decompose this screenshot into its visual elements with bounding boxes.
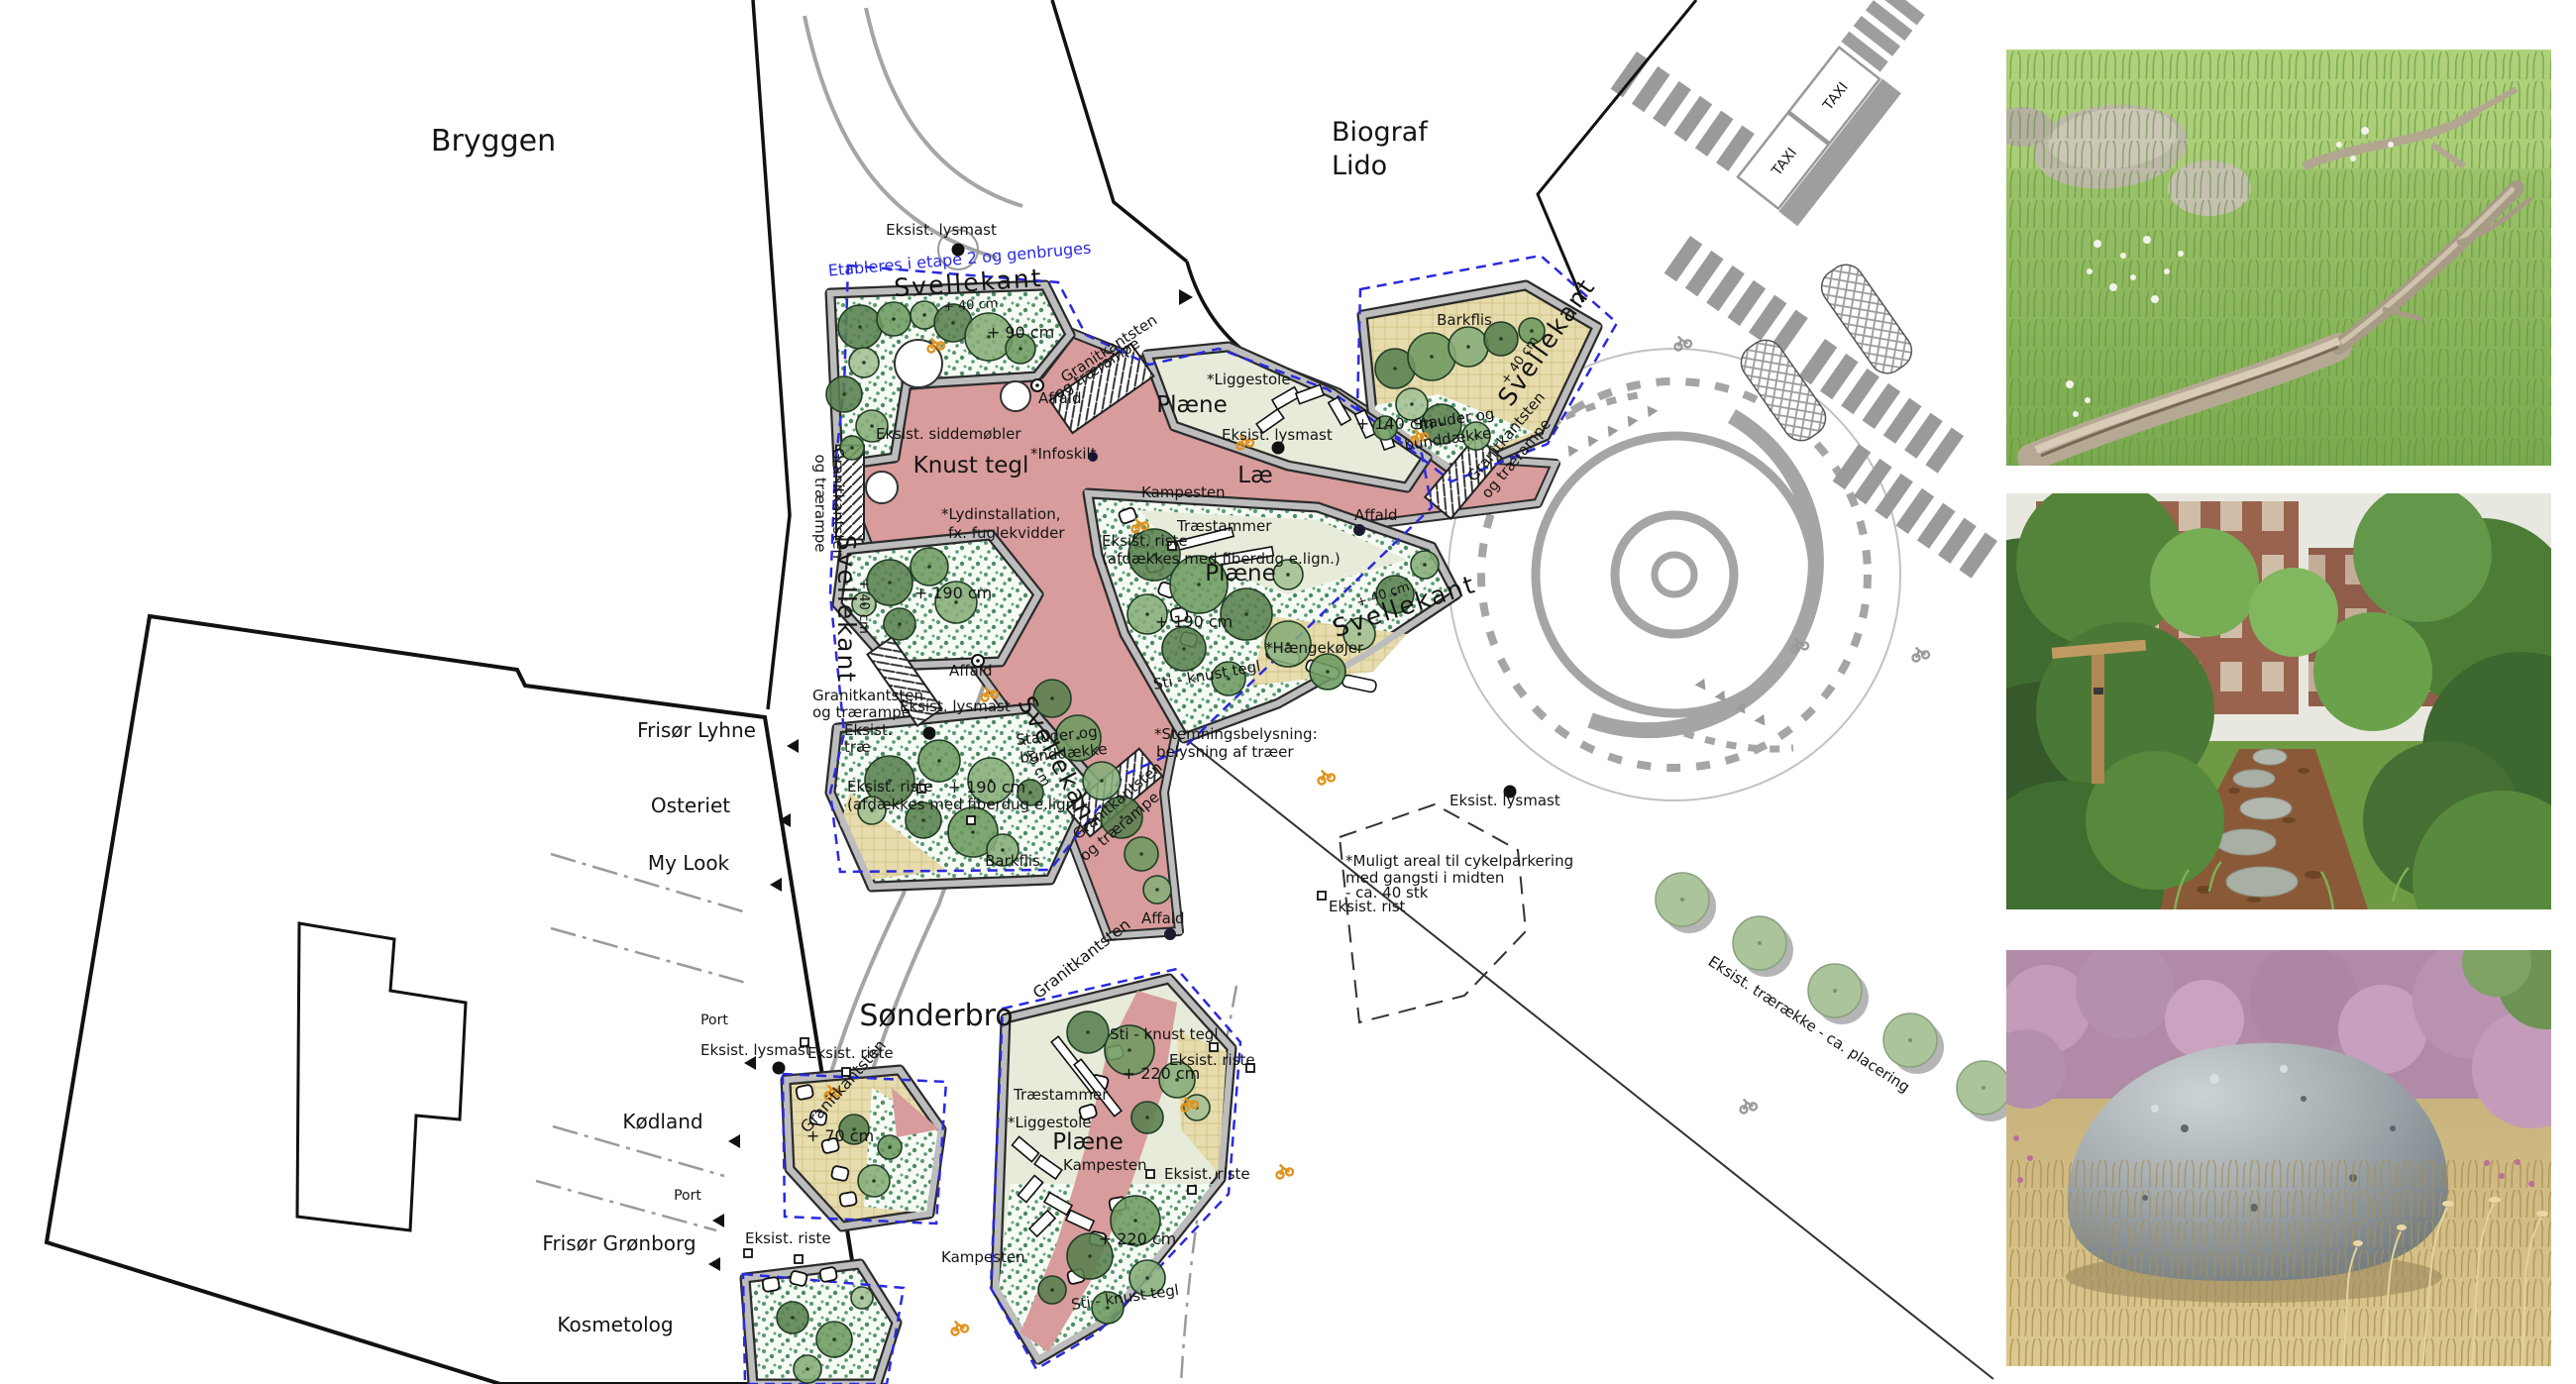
taxi-zone: TAXI TAXI bbox=[1735, 0, 1948, 226]
label-affald: Affald bbox=[1038, 389, 1081, 407]
building-label-lido: Lido bbox=[1332, 151, 1387, 181]
site-plan-drawing: TAXI TAXI Bryggen bbox=[0, 0, 2576, 1384]
street-label-bryggen: Bryggen bbox=[431, 124, 556, 159]
label-granitkantsten-traerampe: Granitkantsten bbox=[829, 448, 847, 559]
photo-woodland-path bbox=[1932, 479, 2576, 979]
label-eksist-lysmast: Eksist. lysmast bbox=[900, 697, 1011, 715]
label-plus190: + 190 cm bbox=[914, 584, 993, 602]
label-barkflis: Barkflis bbox=[1437, 311, 1492, 329]
label-eksist-lysmast: Eksist. lysmast bbox=[1449, 792, 1560, 809]
label-infoskilt: *Infoskilt bbox=[1030, 445, 1097, 463]
label-plus90: + 90 cm bbox=[987, 323, 1054, 342]
label-sti-knust-tegl: Sti - knust tegl bbox=[1110, 1025, 1218, 1043]
label-eksist-riste-afdaekkes: Eksist. riste bbox=[847, 778, 933, 796]
label-eksist-trae: Eksist. bbox=[844, 721, 893, 739]
label-affald: Affald bbox=[1354, 506, 1397, 524]
label-eksist-rist: Eksist. rist bbox=[1329, 898, 1406, 915]
photo-meadow-log bbox=[1992, 50, 2551, 466]
label-traestammer: Træstammer bbox=[1013, 1086, 1109, 1104]
shop-label-my-look: My Look bbox=[648, 851, 730, 875]
label-lydinstallation: *Lydinstallation, bbox=[941, 505, 1060, 523]
gate-label-port: Port bbox=[700, 1012, 728, 1028]
shop-label-kosmetolog: Kosmetolog bbox=[557, 1313, 673, 1336]
label-kampesten: Kampesten bbox=[941, 1248, 1025, 1266]
roundabout-center bbox=[1655, 555, 1694, 594]
label-eksist-riste: Eksist. riste bbox=[745, 1229, 831, 1247]
label-plus70: + 70 cm bbox=[806, 1126, 874, 1145]
label-kampesten: Kampesten bbox=[1063, 1156, 1147, 1174]
label-haengekoejer: *Hængekøjer bbox=[1265, 639, 1364, 657]
existing-tree-row bbox=[1656, 873, 2017, 1121]
label-knust-tegl: Knust tegl bbox=[913, 453, 1029, 479]
label-plus220: + 220 cm bbox=[1099, 1229, 1177, 1248]
label-liggestole: *Liggestole bbox=[1207, 371, 1291, 388]
label-plus190: + 190 cm bbox=[1155, 612, 1234, 631]
shop-label-osteriet: Osteriet bbox=[651, 794, 730, 817]
label-plus220: + 220 cm bbox=[1123, 1064, 1201, 1083]
label-stemningsbelysning: *Stemningsbelysning: bbox=[1154, 725, 1318, 743]
label-eksist-trae: træ bbox=[844, 738, 871, 756]
label-plus190: + 190 cm bbox=[948, 778, 1026, 797]
street-label-soenderbro: Sønderbro bbox=[859, 999, 1013, 1033]
label-barkflis: Barkflis bbox=[985, 852, 1040, 870]
label-granitkantsten-traerampe: og trærampe bbox=[811, 455, 829, 553]
label-lydinstallation: fx. fuglekvidder bbox=[948, 524, 1065, 542]
label-eksist-riste-afdaekkes: Eksist. riste bbox=[1102, 532, 1188, 550]
label-eksist-riste: Eksist. riste bbox=[1164, 1165, 1250, 1183]
building-label-biograf: Biograf bbox=[1332, 117, 1429, 148]
label-eksist-lysmast: Eksist. lysmast bbox=[1222, 426, 1333, 444]
landscape-plan-canvas: TAXI TAXI Bryggen bbox=[0, 0, 2576, 1384]
traffic-island bbox=[1815, 258, 1919, 380]
gate-label-port: Port bbox=[674, 1188, 701, 1204]
label-stemningsbelysning: belysning af træer bbox=[1156, 743, 1294, 761]
label-affald: Affald bbox=[949, 662, 992, 680]
label-eksist-lysmast: Eksist. lysmast bbox=[886, 221, 997, 239]
label-cykelparkering: *Muligt areal til cykelparkering bbox=[1345, 852, 1573, 870]
label-kampesten: Kampesten bbox=[1141, 483, 1226, 501]
label-eksist-lysmast: Eksist. lysmast bbox=[700, 1041, 811, 1059]
label-eksist-siddemoebler: Eksist. siddemøbler bbox=[876, 425, 1021, 443]
shop-label-frisoer-groenborg: Frisør Grønborg bbox=[542, 1231, 696, 1255]
label-plaene: Plæne bbox=[1156, 392, 1228, 418]
shop-label-koedland: Kødland bbox=[622, 1110, 702, 1133]
label-plaene: Plæne bbox=[1205, 561, 1276, 586]
shop-label-frisoer-lyhne: Frisør Lyhne bbox=[637, 718, 756, 742]
photo-boulder-heather bbox=[1986, 927, 2576, 1366]
label-lae: Læ bbox=[1237, 463, 1272, 488]
label-affald: Affald bbox=[1141, 909, 1184, 927]
road-infrastructure: TAXI TAXI bbox=[781, 0, 2017, 1384]
label-granitkantsten-traerampe: og trærampe bbox=[812, 703, 911, 721]
label-plaene: Plæne bbox=[1052, 1129, 1124, 1155]
label-plus140: + 140 cm bbox=[1356, 414, 1435, 433]
label-traestammer: Træstammer bbox=[1176, 517, 1272, 535]
label-plus40: + 40 cm bbox=[856, 579, 871, 634]
label-eksist-traeraekke: Eksist. trærække - ca. placering bbox=[1705, 952, 1913, 1096]
label-eksist-riste-afdaekkes: (afdækkes med fiberdug e.lign.) bbox=[847, 796, 1086, 813]
